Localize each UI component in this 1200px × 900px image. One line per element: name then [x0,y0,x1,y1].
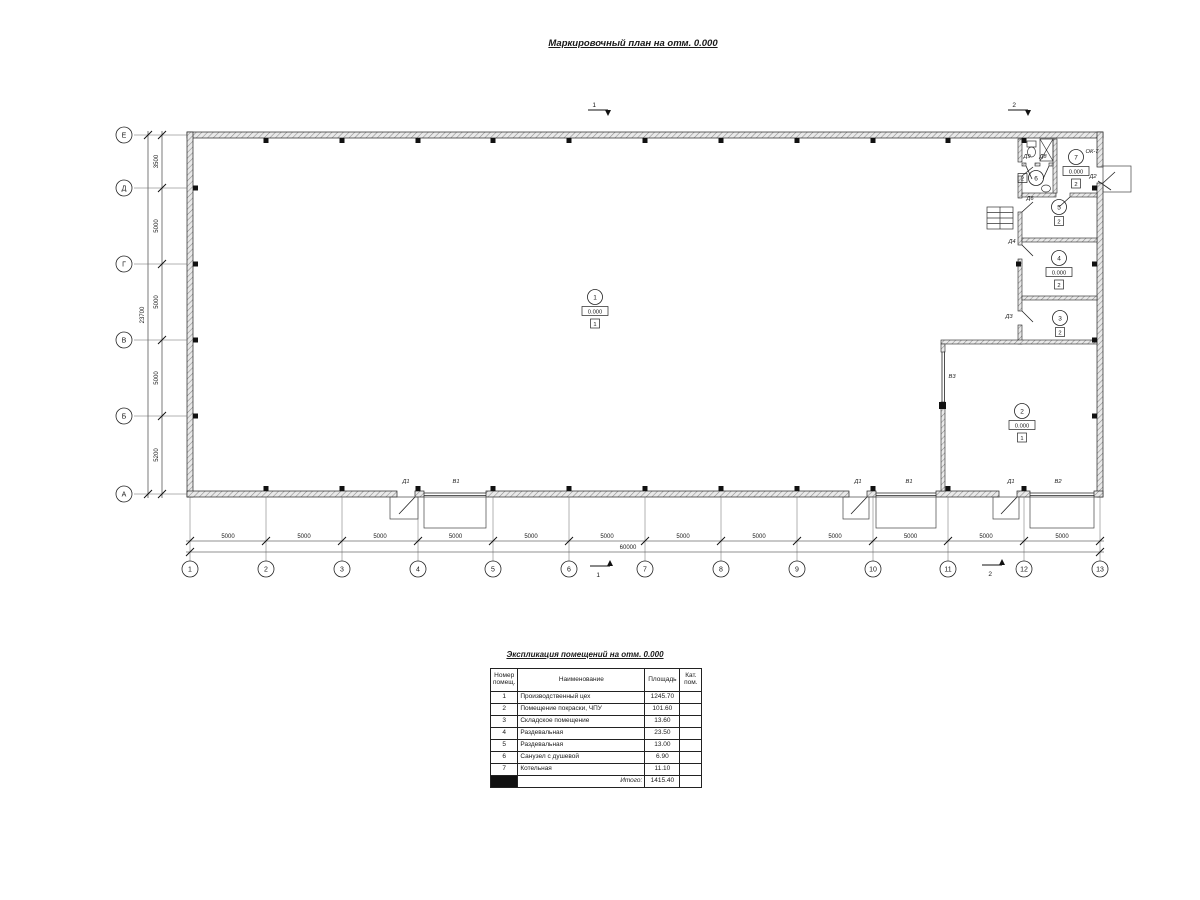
section-arrow-icon [999,559,1005,565]
table-cell: Помещение покраски, ЧПУ [518,704,645,716]
table-cell: 6 [491,752,518,764]
outer-walls [187,132,1103,497]
axis-row-label: Е [122,132,127,139]
table-cell: 13.00 [645,740,680,752]
dim-value: 5000 [449,534,463,540]
axis-col-label: 5 [491,566,495,573]
room-schedule-table: Номер помещ. Наименование Площадь Кат. п… [490,668,702,788]
axis-col-label: 10 [869,566,877,573]
opening-label-d4: Д4 [1007,239,1015,245]
column-mark [643,138,648,143]
header-room-area: Площадь [645,669,680,692]
column-mark [567,486,572,491]
column-mark [946,138,951,143]
table-cell [680,740,702,752]
section-mark-1-top: 1 [588,102,611,116]
table-row: 1Производственный цех1245.70 [491,692,702,704]
table-cell: 4 [491,728,518,740]
axis-row-label: Г [122,261,126,268]
table-cell [680,692,702,704]
room-number: 5 [1057,204,1061,211]
column-mark [1092,186,1097,191]
drawing-sheet: Маркировочный план на отм. 0.000 [0,0,1200,900]
column-mark [264,486,269,491]
room-number: 6 [1034,175,1038,182]
column-mark [340,138,345,143]
table-cell: 23.50 [645,728,680,740]
table-row: 7Котельная11.10 [491,764,702,776]
table-cell: 1 [491,692,518,704]
opening-label-d2: Д2 [1088,174,1097,180]
dim-value: 5000 [828,534,842,540]
category-value: 1 [1020,436,1023,442]
schedule-header-row: Номер помещ. Наименование Площадь Кат. п… [491,669,702,692]
header-room-number: Номер помещ. [491,669,518,692]
axis-col-label: 8 [719,566,723,573]
table-row: 6Санузел с душевой6.90 [491,752,702,764]
table-cell [680,764,702,776]
table-row: 4Раздевальная23.50 [491,728,702,740]
floor-plan: 1 1 2 2 ЕДГВБА35005000500050005200237001… [0,0,1200,620]
table-cell: 7 [491,764,518,776]
column-mark [567,138,572,143]
section-arrow-icon [605,110,611,116]
column-mark [491,138,496,143]
schedule-title: Экспликация помещений на отм. 0.000 [455,650,715,659]
opening-label-v1: В1 [905,479,912,485]
axis-col-label: 2 [264,566,268,573]
table-cell [680,752,702,764]
axis-col-label: 4 [416,566,420,573]
opening-label-v2: В2 [1054,479,1062,485]
sink-icon [1042,185,1051,192]
column-mark [871,486,876,491]
section-mark-label: 2 [1012,102,1016,109]
dim-value: 5000 [676,534,690,540]
dim-total: 60000 [620,545,637,551]
table-cell: Санузел с душевой [518,752,645,764]
section-mark-2-top: 2 [1008,102,1031,116]
section-mark-label: 1 [592,102,596,109]
dim-value: 5000 [373,534,387,540]
column-mark [264,138,269,143]
generated-annotations: ЕДГВБА3500500050005000520023700123456789… [116,127,1108,577]
category-value: 1 [593,322,596,328]
column-mark [491,486,496,491]
room-number: 7 [1074,154,1078,161]
axis-row-label: Б [122,413,127,420]
dim-value: 3500 [154,154,160,168]
axis-col-label: 12 [1020,566,1028,573]
table-cell: 5 [491,740,518,752]
column-mark [1016,262,1021,267]
axis-col-label: 3 [340,566,344,573]
axis-col-label: 6 [567,566,571,573]
dim-value: 5000 [154,295,160,309]
opening-label-d8: Д8 [1038,154,1047,160]
axis-col-label: 9 [795,566,799,573]
table-cell: 2 [491,704,518,716]
table-row: 2Помещение покраски, ЧПУ101.60 [491,704,702,716]
column-mark [871,138,876,143]
dim-value: 5000 [154,219,160,233]
section-arrow-icon [1025,110,1031,116]
table-row: 3Складское помещение13.60 [491,716,702,728]
room-number: 2 [1020,408,1024,415]
table-cell [680,716,702,728]
opening-label-d1: Д1 [853,479,861,485]
dim-total: 23700 [140,306,146,323]
room-number: 1 [593,294,597,301]
column-mark [795,138,800,143]
gate-thresholds [424,352,1094,496]
table-cell: Складское помещение [518,716,645,728]
column-mark [939,402,946,409]
table-cell [680,704,702,716]
column-mark [1092,414,1097,419]
column-mark [946,486,951,491]
column-mark [193,262,198,267]
dim-value: 5000 [221,534,235,540]
table-cell: Производственный цех [518,692,645,704]
elevation-value: 0.000 [1015,423,1030,429]
table-cell: 6.90 [645,752,680,764]
elevation-value: 0.000 [588,309,603,315]
column-mark [1092,338,1097,343]
header-room-cat: Кат. пом. [680,669,702,692]
table-cell [680,728,702,740]
column-mark [340,486,345,491]
dim-value: 5000 [297,534,311,540]
column-mark [643,486,648,491]
column-mark [1022,138,1027,143]
header-room-name: Наименование [518,669,645,692]
dim-value: 5000 [1055,534,1069,540]
category-value: 2 [1057,283,1060,289]
column-mark [1022,486,1027,491]
section-arrow-icon [607,560,613,566]
dim-value: 5000 [600,534,614,540]
column-mark [416,138,421,143]
column-mark [719,486,724,491]
table-cell: Раздевальная [518,740,645,752]
category-value: 2 [1058,330,1061,336]
table-cell: Раздевальная [518,728,645,740]
column-mark [416,486,421,491]
opening-label-d9: Д9 [1022,154,1031,160]
section-mark-label: 2 [988,571,992,578]
opening-label-d6: Д6 [1025,196,1034,202]
table-cell: 11.10 [645,764,680,776]
total-label: Итого: [518,776,645,788]
category-value: 2 [1021,176,1024,182]
table-cell: 101.60 [645,704,680,716]
dim-value: 5200 [154,448,160,462]
category-value: 2 [1074,182,1077,188]
dim-value: 5000 [154,371,160,385]
column-mark [719,138,724,143]
section-mark-2-bottom: 2 [982,559,1005,578]
room-number: 3 [1058,315,1062,322]
column-mark [193,338,198,343]
interior-walls [941,139,1097,491]
dim-value: 5000 [979,534,993,540]
opening-label-v3: В3 [948,374,956,380]
panel-icon [987,207,1013,229]
table-cell: 3 [491,716,518,728]
category-value: 2 [1057,219,1060,225]
schedule-total-row: Итого: 1415.40 [491,776,702,788]
elevation-value: 0.000 [1052,270,1067,276]
axis-row-label: В [122,337,127,344]
dim-value: 5000 [752,534,766,540]
axis-col-label: 11 [944,566,951,573]
column-mark [1092,262,1097,267]
axis-col-label: 7 [643,566,647,573]
axis-row-label: Д [122,185,127,192]
table-cell: Котельная [518,764,645,776]
column-mark [193,186,198,191]
opening-label-ok7: ОК-7 [1085,149,1099,155]
table-cell: 13.60 [645,716,680,728]
elevation-value: 0.000 [1069,169,1084,175]
opening-label-d1: Д1 [401,479,409,485]
dim-value: 5000 [524,534,538,540]
axis-col-label: 13 [1096,566,1104,573]
table-row: 5Раздевальная13.00 [491,740,702,752]
total-black-cell [491,776,518,788]
column-mark [795,486,800,491]
total-value: 1415.40 [645,776,680,788]
axis-row-label: А [122,491,127,498]
dim-value: 5000 [904,534,918,540]
opening-label-v1: В1 [452,479,459,485]
column-mark [193,414,198,419]
section-mark-label: 1 [596,572,600,579]
opening-label-d3: Д3 [1004,314,1013,320]
opening-label-d1: Д1 [1006,479,1014,485]
section-mark-1-bottom: 1 [590,560,613,579]
table-cell: 1245.70 [645,692,680,704]
axis-col-label: 1 [188,566,192,573]
room-number: 4 [1057,255,1061,262]
